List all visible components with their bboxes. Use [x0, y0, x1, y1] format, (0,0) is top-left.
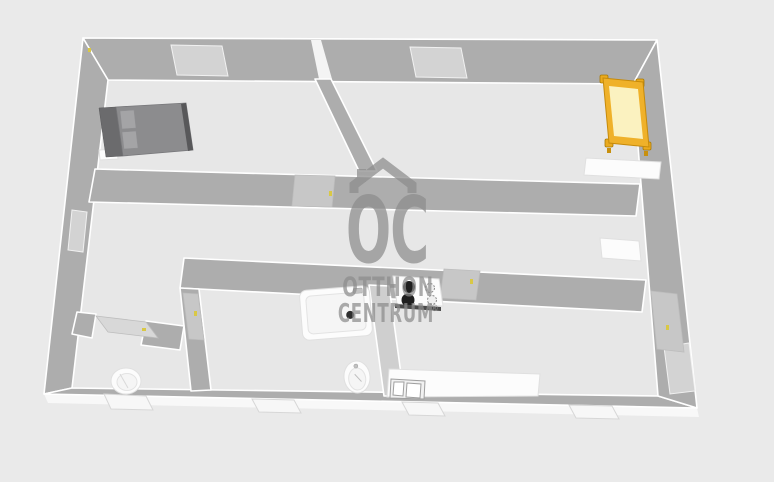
watermark-line2: CENTRUM [338, 299, 434, 329]
window-bottom-4 [569, 405, 619, 419]
bed-foot [644, 151, 648, 156]
window-top-2 [410, 47, 467, 78]
toilet-seat [117, 374, 137, 391]
double-bed [99, 103, 193, 160]
door-handle-dot [666, 325, 669, 330]
door-kitchen [440, 269, 480, 300]
door-handle-dot [194, 311, 197, 316]
single-bed [600, 75, 651, 156]
floorplan-render: OC OTTHON CENTRUM ® [0, 0, 774, 482]
window-bottom-1 [104, 394, 153, 410]
bed-mattress-yellow [609, 86, 643, 139]
sink-basin [393, 382, 404, 396]
window-bottom-3 [402, 402, 445, 416]
wall-shelf [584, 158, 661, 179]
door-handle-dot [329, 191, 332, 196]
door-hall-bedroom [292, 175, 335, 207]
wall-top [83, 38, 657, 84]
door-handle-dot [88, 48, 91, 52]
floorplan-canvas: OC OTTHON CENTRUM ® [0, 0, 774, 482]
window-top-1 [171, 45, 228, 76]
watermark: OC OTTHON CENTRUM ® [338, 163, 439, 329]
kitchen-counter [387, 369, 540, 399]
watermark-monogram: OC [346, 176, 428, 284]
wall-wc-top-left [72, 312, 96, 338]
door-handle-dot [470, 279, 473, 284]
washbasin-faucet [354, 364, 358, 368]
toilet [111, 368, 141, 394]
bed-pillow [122, 131, 138, 149]
sink-basin [406, 383, 421, 398]
door-handle-dot [142, 328, 146, 331]
bed-pillow [120, 110, 136, 129]
watermark-registered-mark: ® [430, 304, 439, 314]
bed-foot [607, 148, 611, 153]
cabinet [600, 238, 641, 261]
window-bottom-2 [252, 399, 301, 413]
